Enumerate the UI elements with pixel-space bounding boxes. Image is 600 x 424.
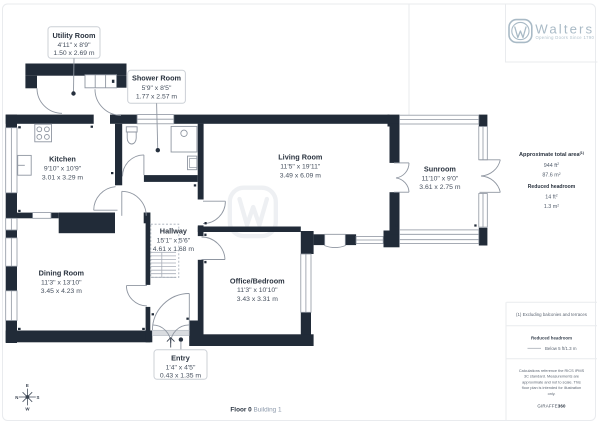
svg-text:Utility Room: Utility Room [53,31,96,40]
svg-text:11'3" x 10'10": 11'3" x 10'10" [237,287,278,294]
svg-text:Entry: Entry [171,353,191,362]
svg-text:5'9" x 8'5": 5'9" x 8'5" [142,85,172,92]
svg-text:3.49 x 6.09 m: 3.49 x 6.09 m [280,172,322,179]
svg-text:1.3 m2: 1.3 m2 [544,203,559,210]
svg-text:11'5" x 19'11": 11'5" x 19'11" [280,163,321,170]
svg-text:Kitchen: Kitchen [49,155,76,164]
svg-text:approximate and not to scale.: approximate and not to scale. This [522,380,581,384]
svg-text:4'11" x 8'9": 4'11" x 8'9" [58,42,92,49]
svg-text:3C standard. Measurements are: 3C standard. Measurements are [524,375,579,379]
svg-text:Approximate total area(1): Approximate total area(1) [519,151,585,158]
svg-text:Office/Bedroom: Office/Bedroom [230,277,285,286]
svg-text:3.01 x 3.29 m: 3.01 x 3.29 m [42,175,84,182]
svg-text:Floor 0 Building 1: Floor 0 Building 1 [230,406,282,413]
svg-text:(1) Excluding balconies and te: (1) Excluding balconies and terraces [516,312,588,317]
svg-text:only.: only. [548,392,556,396]
svg-text:S: S [37,395,40,400]
svg-text:3.45 x 4.23 m: 3.45 x 4.23 m [41,288,83,295]
svg-text:944 ft2: 944 ft2 [544,162,560,169]
svg-text:1.77 x 2.57 m: 1.77 x 2.57 m [136,93,178,100]
svg-text:Hallway: Hallway [160,226,188,235]
svg-text:N: N [15,395,18,400]
svg-text:Reduced headroom: Reduced headroom [528,184,576,190]
svg-text:floor plan is intended for ill: floor plan is intended for illustration [522,386,581,390]
svg-text:Living Room: Living Room [278,153,323,162]
svg-text:11'3" x 13'10": 11'3" x 13'10" [41,279,82,286]
svg-text:0.43 x 1.35 m: 0.43 x 1.35 m [160,373,202,380]
svg-text:Sunroom: Sunroom [424,164,457,173]
svg-text:Calculations reference the RIC: Calculations reference the RICS IPMS [519,369,585,373]
svg-text:Reduced headroom: Reduced headroom [531,336,572,341]
svg-text:1.50 x 2.69 m: 1.50 x 2.69 m [53,50,95,57]
svg-text:87.6 m2: 87.6 m2 [542,172,560,179]
svg-text:Below 5 ft/1.3 m: Below 5 ft/1.3 m [545,346,577,351]
svg-text:3.43 x 3.31 m: 3.43 x 3.31 m [237,296,279,303]
svg-text:15'1" x 5'6": 15'1" x 5'6" [157,237,191,244]
svg-text:GIRAFFE360: GIRAFFE360 [537,404,566,409]
svg-text:9'10" x 10'9": 9'10" x 10'9" [44,166,82,173]
svg-text:4.61 x 1.68 m: 4.61 x 1.68 m [153,246,195,253]
svg-text:11'10" x 9'0": 11'10" x 9'0" [422,175,459,182]
svg-text:3.61 x 2.75 m: 3.61 x 2.75 m [419,184,461,191]
svg-text:Opening Doors Since 1790: Opening Doors Since 1790 [536,35,595,40]
svg-text:Shower Room: Shower Room [132,74,182,83]
svg-text:1'4" x 4'5": 1'4" x 4'5" [166,364,196,371]
svg-text:E: E [26,383,29,388]
svg-text:Dining Room: Dining Room [39,269,85,278]
